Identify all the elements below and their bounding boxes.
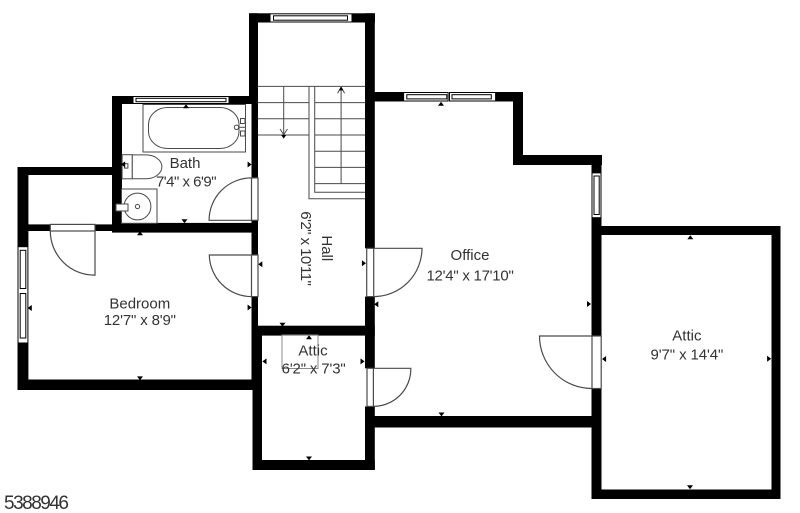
svg-text:Hall: Hall bbox=[318, 235, 335, 261]
svg-text:12'4" x 17'10": 12'4" x 17'10" bbox=[426, 267, 513, 284]
svg-text:Attic: Attic bbox=[672, 328, 702, 345]
svg-text:7'4" x 6'9": 7'4" x 6'9" bbox=[156, 173, 216, 190]
svg-text:9'7" x 14'4": 9'7" x 14'4" bbox=[651, 346, 724, 363]
svg-text:Attic: Attic bbox=[298, 342, 328, 359]
svg-text:Bedroom: Bedroom bbox=[109, 296, 170, 313]
svg-text:Office: Office bbox=[451, 247, 490, 264]
svg-text:12'7" x 8'9": 12'7" x 8'9" bbox=[104, 312, 176, 329]
svg-text:Bath: Bath bbox=[170, 155, 201, 172]
svg-text:6'2" x 10'11": 6'2" x 10'11" bbox=[297, 211, 314, 285]
svg-text:5388946: 5388946 bbox=[4, 493, 68, 513]
svg-text:6'2" x 7'3": 6'2" x 7'3" bbox=[282, 360, 346, 377]
